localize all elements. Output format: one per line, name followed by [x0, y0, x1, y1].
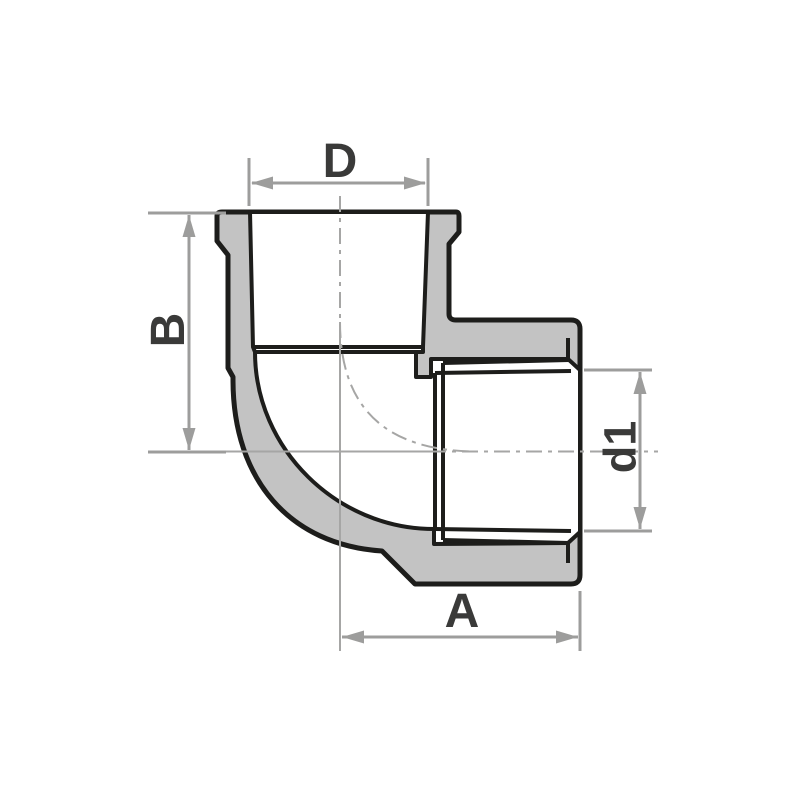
technical-drawing-canvas: D B A d1	[0, 0, 800, 800]
dim-label-A: A	[445, 588, 480, 636]
thread-outer-top-line	[435, 371, 571, 373]
thread-outer-bottom-line	[435, 529, 571, 531]
dim-D-arrow-left	[251, 177, 273, 190]
dim-d1-arrow-top	[634, 372, 647, 394]
dim-A-arrow-left	[342, 631, 364, 644]
dim-B-arrow-top	[183, 215, 196, 237]
dim-B-arrow-bottom	[183, 428, 196, 450]
dim-A-arrow-right	[556, 631, 578, 644]
elbow-fitting-drawing	[0, 0, 800, 800]
dim-d1-arrow-bottom	[634, 507, 647, 529]
dim-label-d1: d1	[598, 421, 643, 474]
dim-D-arrow-right	[404, 177, 426, 190]
dim-label-B: B	[145, 313, 193, 348]
dim-label-D: D	[323, 138, 358, 186]
